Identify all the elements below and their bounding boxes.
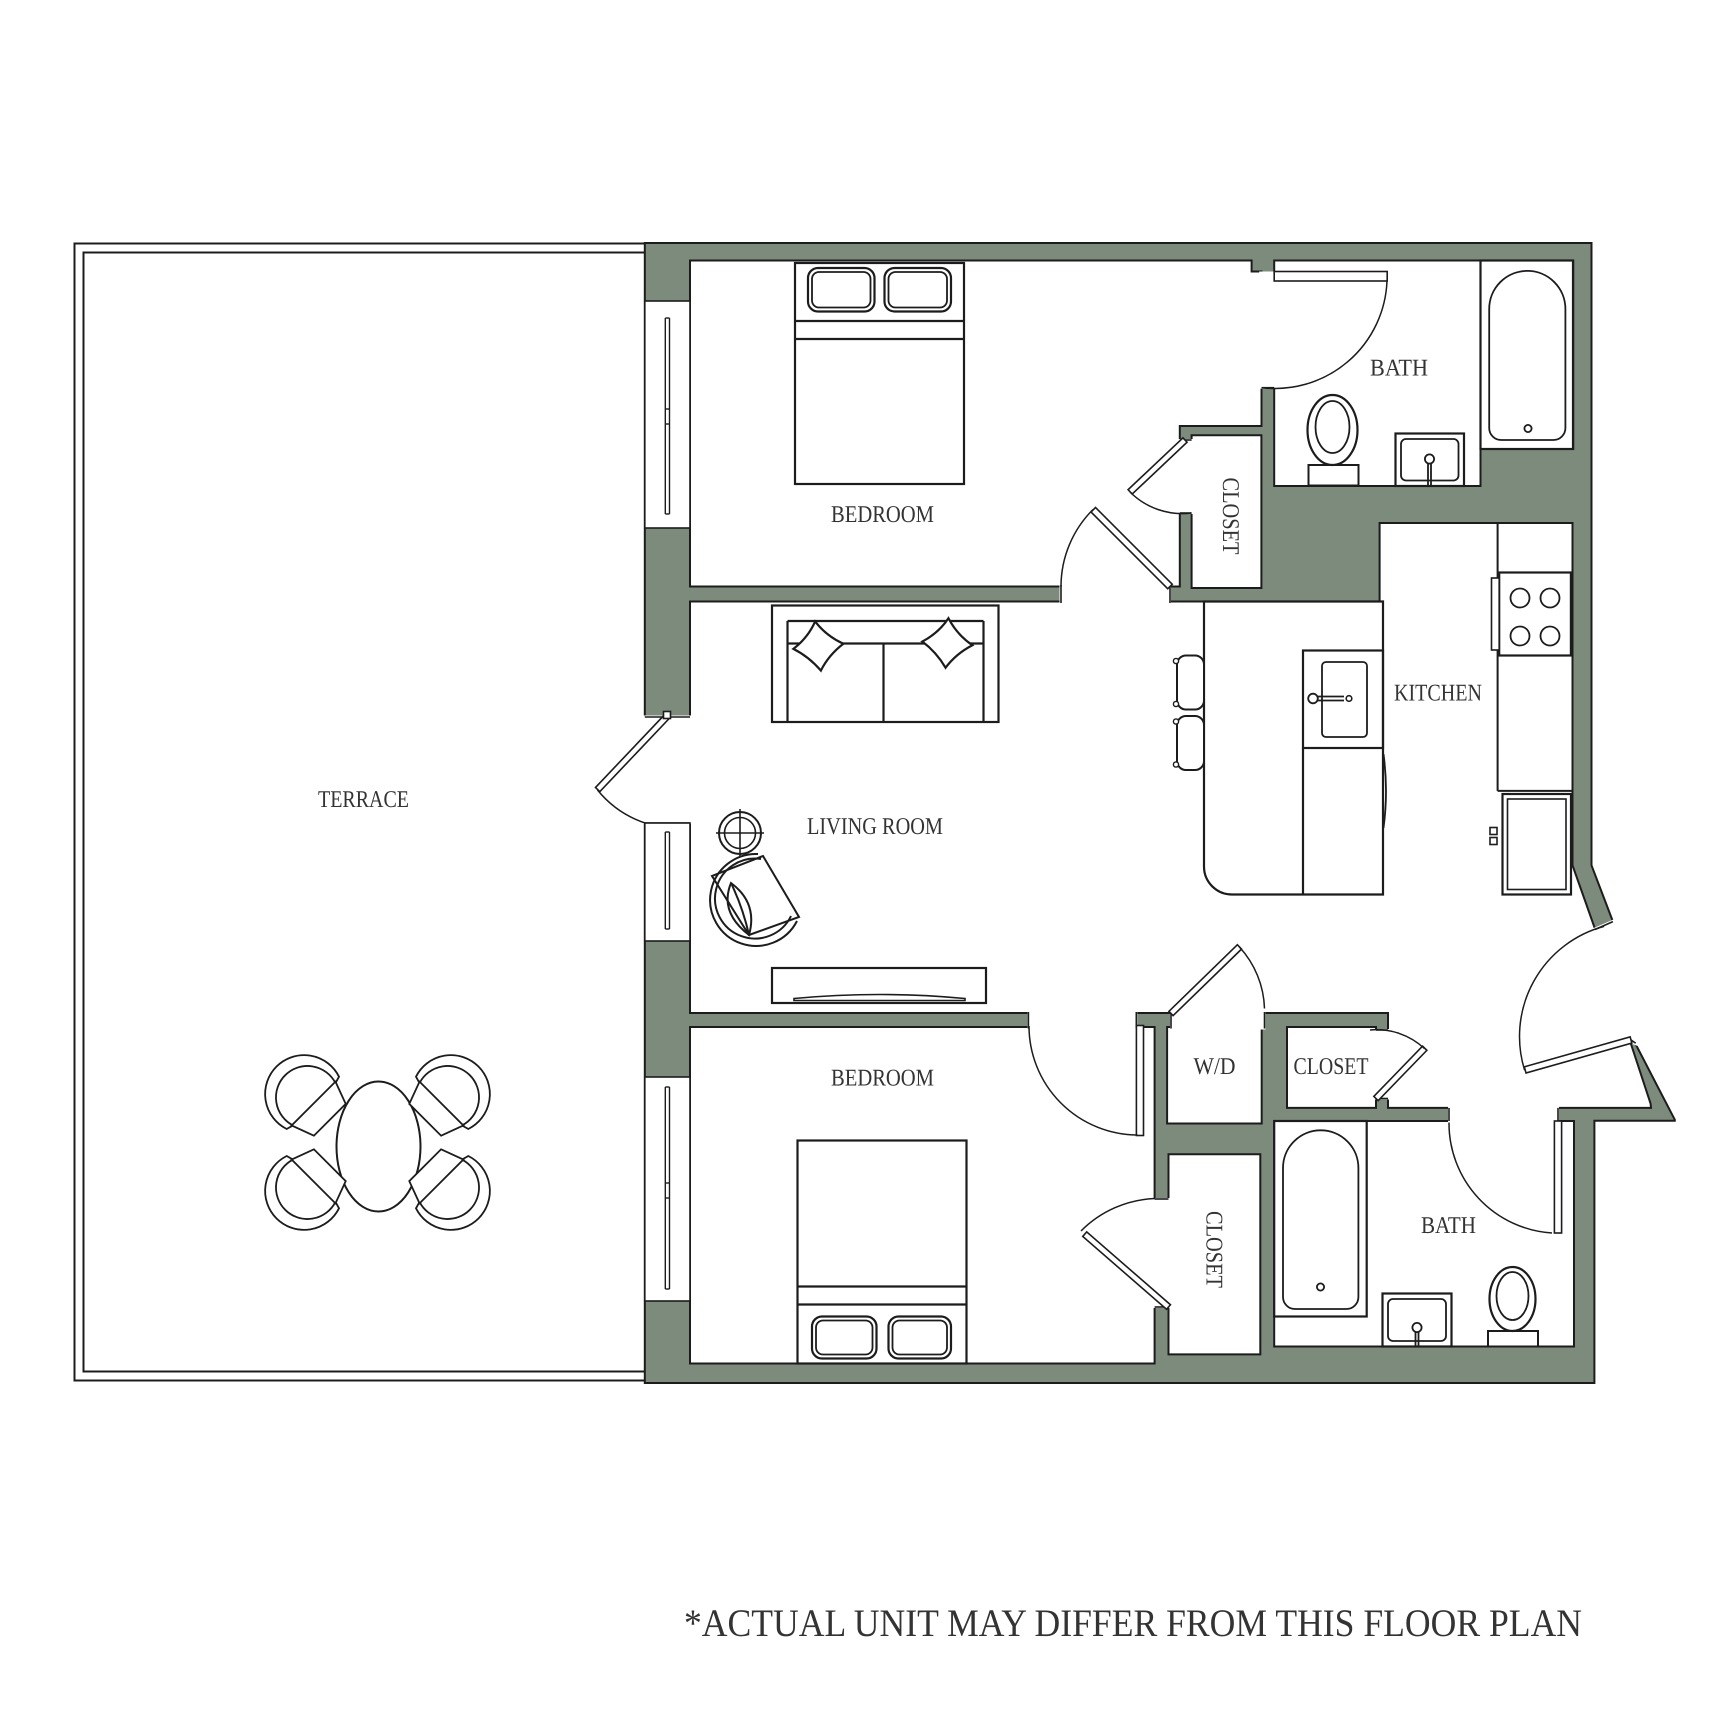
- svg-text:BATH: BATH: [1421, 1213, 1476, 1239]
- svg-text:BEDROOM: BEDROOM: [831, 502, 934, 528]
- svg-text:BATH: BATH: [1370, 356, 1428, 382]
- svg-text:W/D: W/D: [1194, 1054, 1236, 1080]
- svg-text:KITCHEN: KITCHEN: [1394, 681, 1482, 707]
- svg-text:CLOSET: CLOSET: [1294, 1054, 1369, 1080]
- svg-text:CLOSET: CLOSET: [1201, 1211, 1227, 1288]
- svg-text:*ACTUAL UNIT MAY DIFFER FROM T: *ACTUAL UNIT MAY DIFFER FROM THIS FLOOR …: [684, 1602, 1582, 1645]
- svg-text:TERRACE: TERRACE: [318, 787, 409, 813]
- svg-text:LIVING ROOM: LIVING ROOM: [807, 814, 943, 840]
- svg-text:CLOSET: CLOSET: [1217, 478, 1243, 555]
- svg-text:BEDROOM: BEDROOM: [831, 1066, 934, 1092]
